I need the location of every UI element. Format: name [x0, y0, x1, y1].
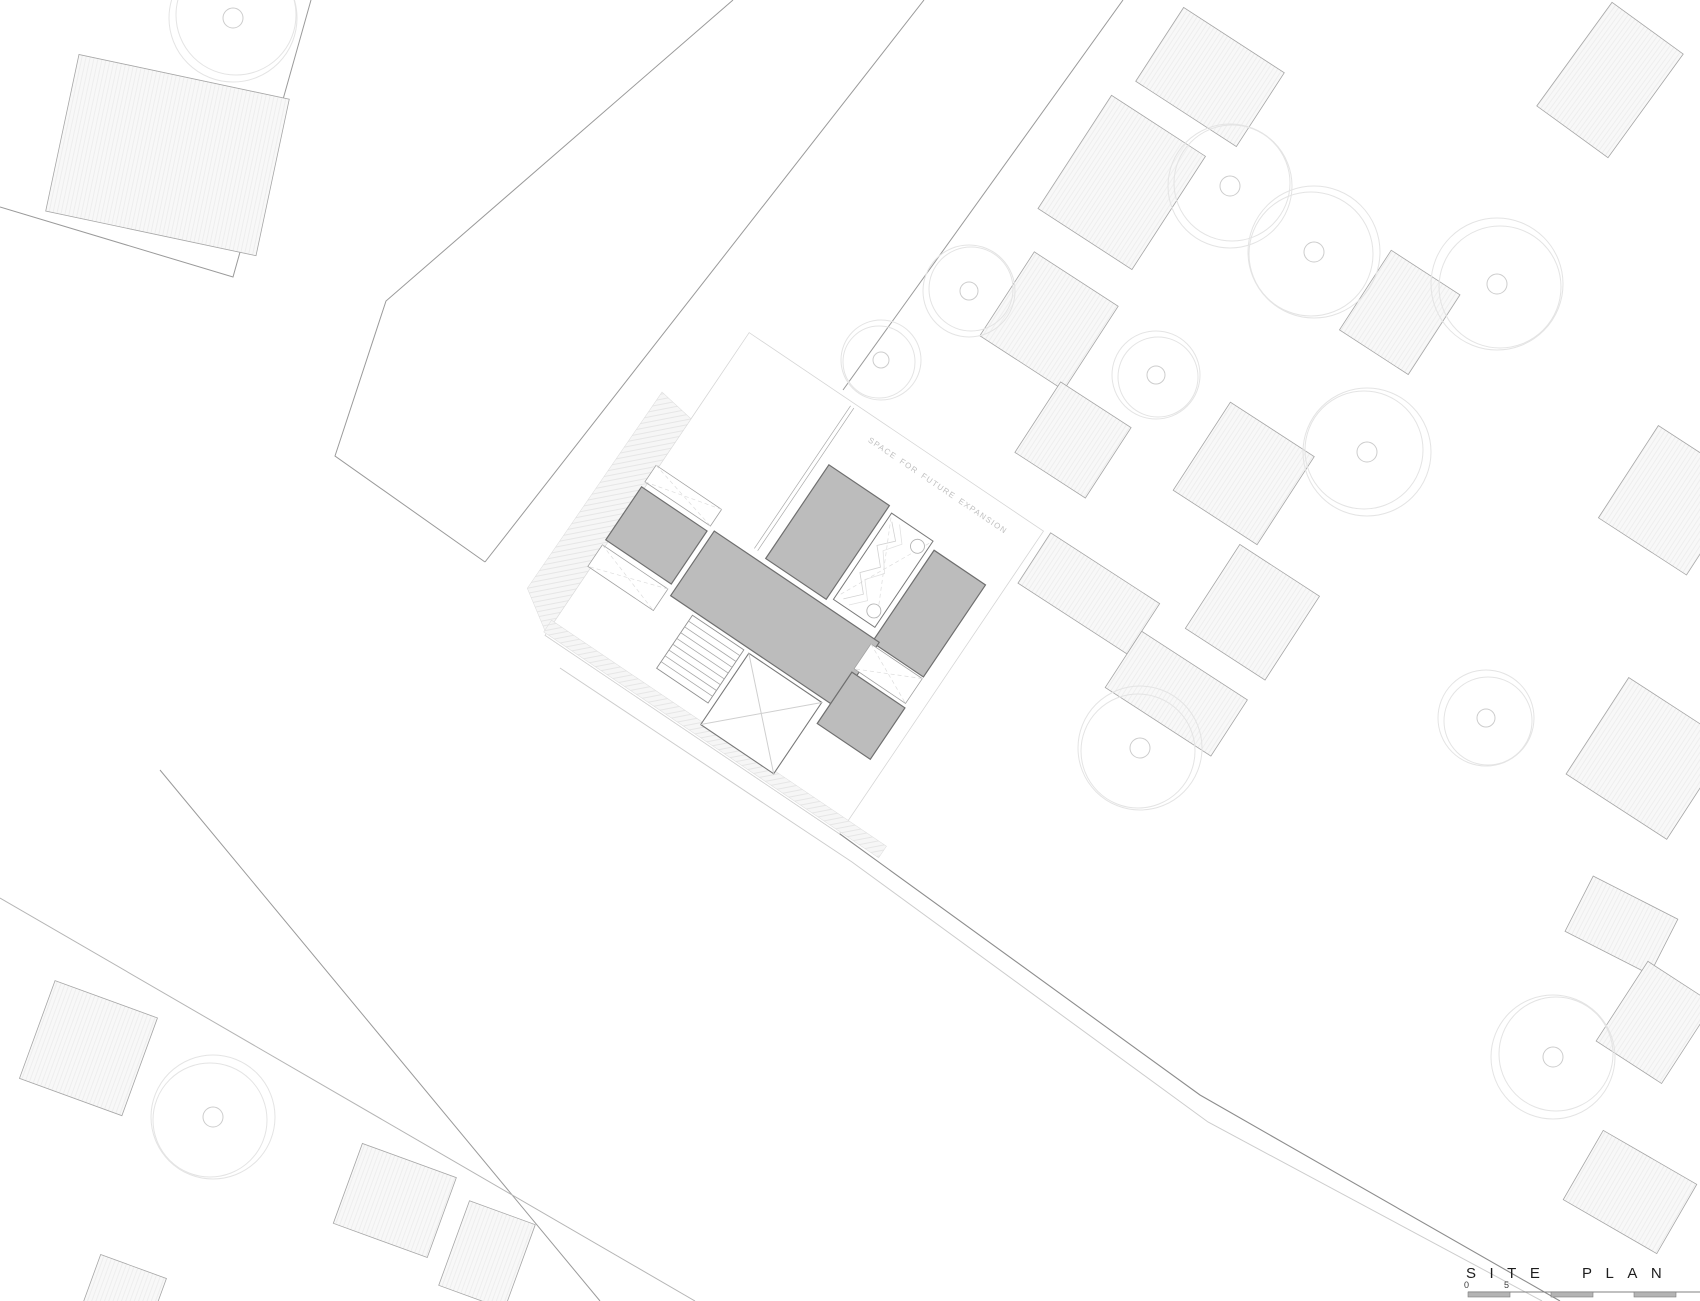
scale-label-0: 0 — [1464, 1280, 1469, 1290]
site-plan-drawing: SPACE FOR FUTURE EXPANSION SITE PLAN 0 5 — [0, 0, 1700, 1301]
site-plan-page: SPACE FOR FUTURE EXPANSION SITE PLAN 0 5 — [0, 0, 1700, 1301]
scale-segment — [1634, 1292, 1676, 1297]
title-block: SITE PLAN 0 5 — [1464, 1265, 1700, 1297]
scale-segment — [1551, 1292, 1593, 1297]
drawing-title: SITE PLAN — [1466, 1265, 1675, 1282]
scale-segment — [1468, 1292, 1510, 1297]
scale-label-5: 5 — [1504, 1280, 1509, 1290]
